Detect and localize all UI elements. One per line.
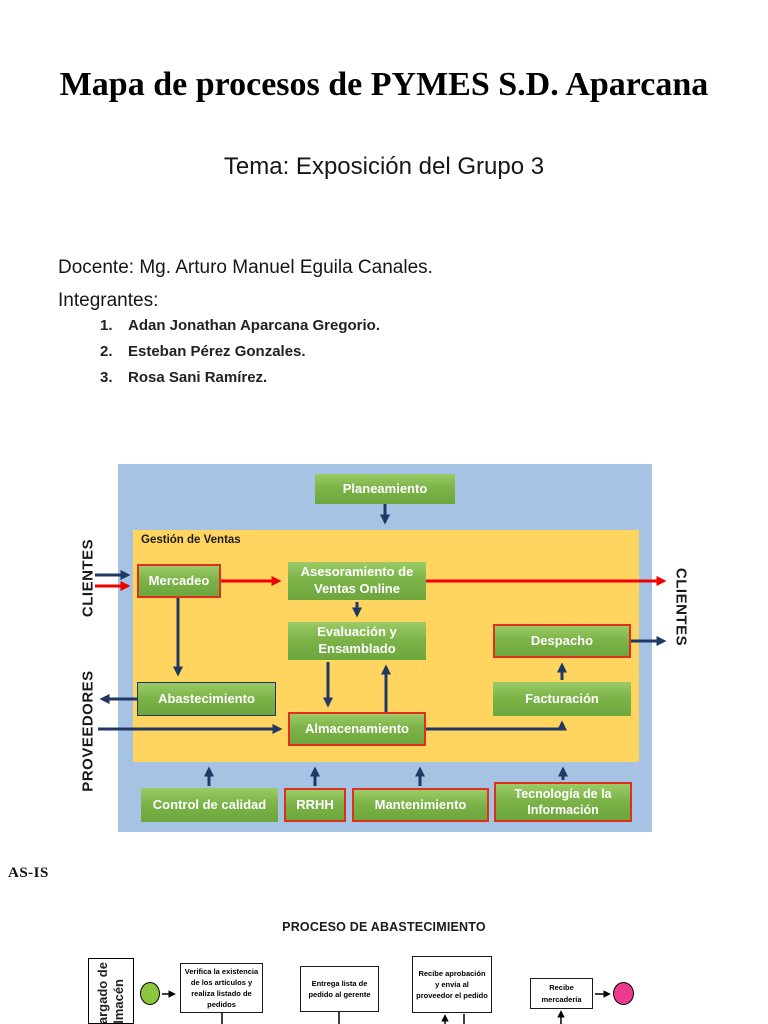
swimlane-label: Encargado de almacén (95, 959, 128, 1024)
gestion-de-ventas-title: Gestión de Ventas (141, 534, 241, 546)
clientes-left-label: CLIENTES (80, 539, 97, 617)
member-name: Rosa Sani Ramírez. (128, 369, 267, 386)
start-event-circle (140, 982, 160, 1005)
box-asesoramiento: Asesoramiento de Ventas Online (288, 562, 426, 600)
page-title: Mapa de procesos de PYMES S.D. Aparcana (0, 66, 768, 104)
flow-step-2: Entrega lista de pedido al gerente (300, 966, 379, 1012)
flow-step-4: Recibe mercadería (530, 978, 593, 1009)
as-is-label: AS-IS (8, 865, 49, 882)
swimlane-encargado-almacen: Encargado de almacén (88, 958, 134, 1024)
box-planeamiento: Planeamiento (315, 474, 455, 504)
slide-subtitle: Tema: Exposición del Grupo 3 (0, 153, 768, 181)
member-item: 3. Rosa Sani Ramírez. (100, 369, 267, 386)
proveedores-label: PROVEEDORES (80, 670, 97, 791)
box-almacenamiento: Almacenamiento (288, 712, 426, 746)
flow-step-1: Verifica la existencia de los artículos … (180, 963, 263, 1013)
box-facturacion: Facturación (493, 682, 631, 716)
box-mercadeo: Mercadeo (137, 564, 221, 598)
docente-line: Docente: Mg. Arturo Manuel Eguila Canale… (58, 257, 433, 279)
member-number: 2. (100, 343, 128, 360)
member-number: 1. (100, 317, 128, 334)
end-event-circle (613, 982, 634, 1005)
box-evaluacion-ensamblado: Evaluación y Ensamblado (288, 622, 426, 660)
member-item: 1. Adan Jonathan Aparcana Gregorio. (100, 317, 380, 334)
box-rrhh: RRHH (284, 788, 346, 822)
box-tecnologia-informacion: Tecnología de la Información (494, 782, 632, 822)
box-control-de-calidad: Control de calidad (141, 788, 278, 822)
process-map: Gestión de Ventas Planeamiento Mercadeo … (118, 464, 652, 832)
box-despacho: Despacho (493, 624, 631, 658)
member-name: Esteban Pérez Gonzales. (128, 343, 306, 360)
clientes-right-label: CLIENTES (673, 568, 690, 646)
member-item: 2. Esteban Pérez Gonzales. (100, 343, 306, 360)
box-abastecimiento: Abastecimiento (137, 682, 276, 716)
integrantes-label: Integrantes: (58, 290, 158, 312)
flow-step-3: Recibe aprobación y envía al proveedor e… (412, 956, 492, 1013)
member-number: 3. (100, 369, 128, 386)
box-mantenimiento: Mantenimiento (352, 788, 489, 822)
member-name: Adan Jonathan Aparcana Gregorio. (128, 317, 380, 334)
flow-title: PROCESO DE ABASTECIMIENTO (0, 920, 768, 934)
